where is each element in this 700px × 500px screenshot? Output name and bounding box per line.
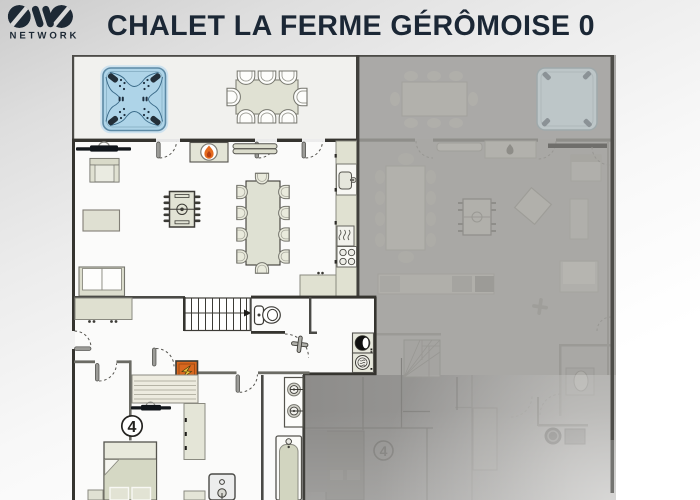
svg-text:4: 4 <box>128 419 137 436</box>
svg-text:CHALET LA FERME GÉRÔMOISE 0: CHALET LA FERME GÉRÔMOISE 0 <box>107 9 595 42</box>
svg-text:NETWORK: NETWORK <box>10 31 80 42</box>
